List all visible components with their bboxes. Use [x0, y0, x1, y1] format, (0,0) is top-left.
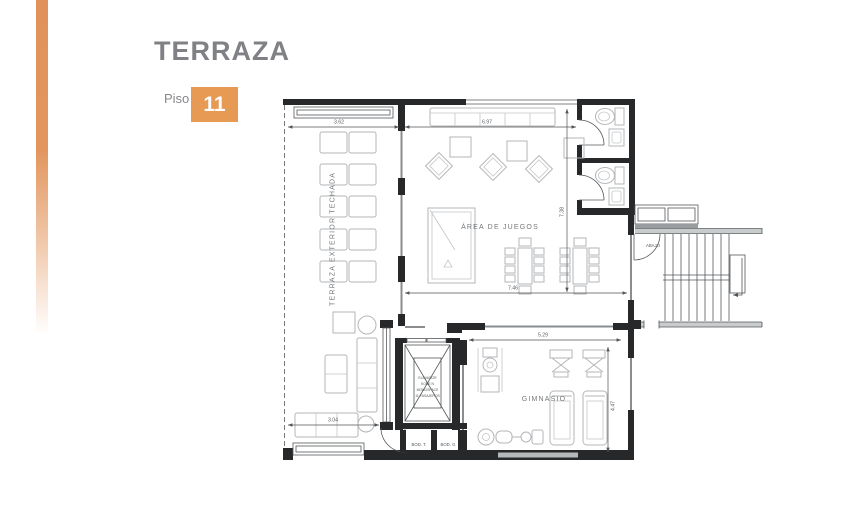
toilet-icon [596, 167, 625, 184]
staircase: ABAJO [633, 205, 762, 329]
game-table-2 [560, 238, 599, 294]
stairs-direction-label: ABAJO [646, 243, 661, 248]
dim-gym-height: 4.47 [611, 401, 617, 411]
sink-icon [609, 188, 624, 205]
pool-table [428, 208, 475, 283]
sink-icon [609, 129, 624, 146]
dim-gym-width: 5.29 [538, 333, 548, 339]
games-right-wall [628, 215, 634, 330]
accent-stripe [36, 0, 48, 335]
dim-juegos-height: 7.38 [560, 207, 566, 217]
elevator-label-line2: KONE N [421, 382, 435, 386]
storage-g-label: BOD. G [440, 442, 456, 447]
dim-juegos-width: 7.46 [508, 286, 518, 292]
floor-label: Piso [164, 91, 189, 106]
floor-plan: ABAJO ELEVADOR KONE N MONOSPACE 1 [283, 88, 765, 472]
storage-rooms: BOD. T. BOD. G [380, 320, 456, 452]
page: TERRAZA Piso 11 [0, 0, 851, 525]
page-title: TERRAZA [154, 36, 290, 67]
storage-t-label: BOD. T. [412, 442, 427, 447]
gym-bike [478, 429, 543, 445]
games-room-label: ÁREA DE JUEGOS [461, 222, 539, 231]
elevator: ELEVADOR KONE N MONOSPACE 11 PASAJEROS [395, 338, 467, 430]
armchairs [426, 153, 553, 183]
terraza-games-divider-wall [398, 105, 405, 326]
gym-press-machine [478, 348, 502, 392]
gym-cable-machine-1 [550, 350, 572, 377]
floor-number-badge: 11 [191, 87, 238, 122]
toilet-icon [596, 108, 625, 125]
sun-loungers [320, 132, 376, 282]
games-sofa [430, 108, 555, 126]
dim-terraza-top: 3.62 [334, 120, 344, 126]
bathrooms [577, 99, 635, 215]
gym-cable-machine-2 [583, 350, 605, 377]
elevator-label-line3: MONOSPACE [417, 388, 440, 392]
terraza-room-label: TERRAZA EXTERIOR TECHADA [330, 172, 337, 306]
side-tables [450, 137, 584, 161]
gym-treadmill-2 [583, 391, 607, 445]
dim-estar-width: 3.04 [328, 418, 338, 424]
stair-window [635, 205, 698, 228]
gym-room-label: GIMNASIO [522, 396, 567, 403]
elevator-label-line1: ELEVADOR [418, 376, 437, 380]
dim-juegos-top: 6.97 [482, 120, 492, 126]
elevator-label-line4: 11 PASAJEROS [415, 394, 440, 398]
